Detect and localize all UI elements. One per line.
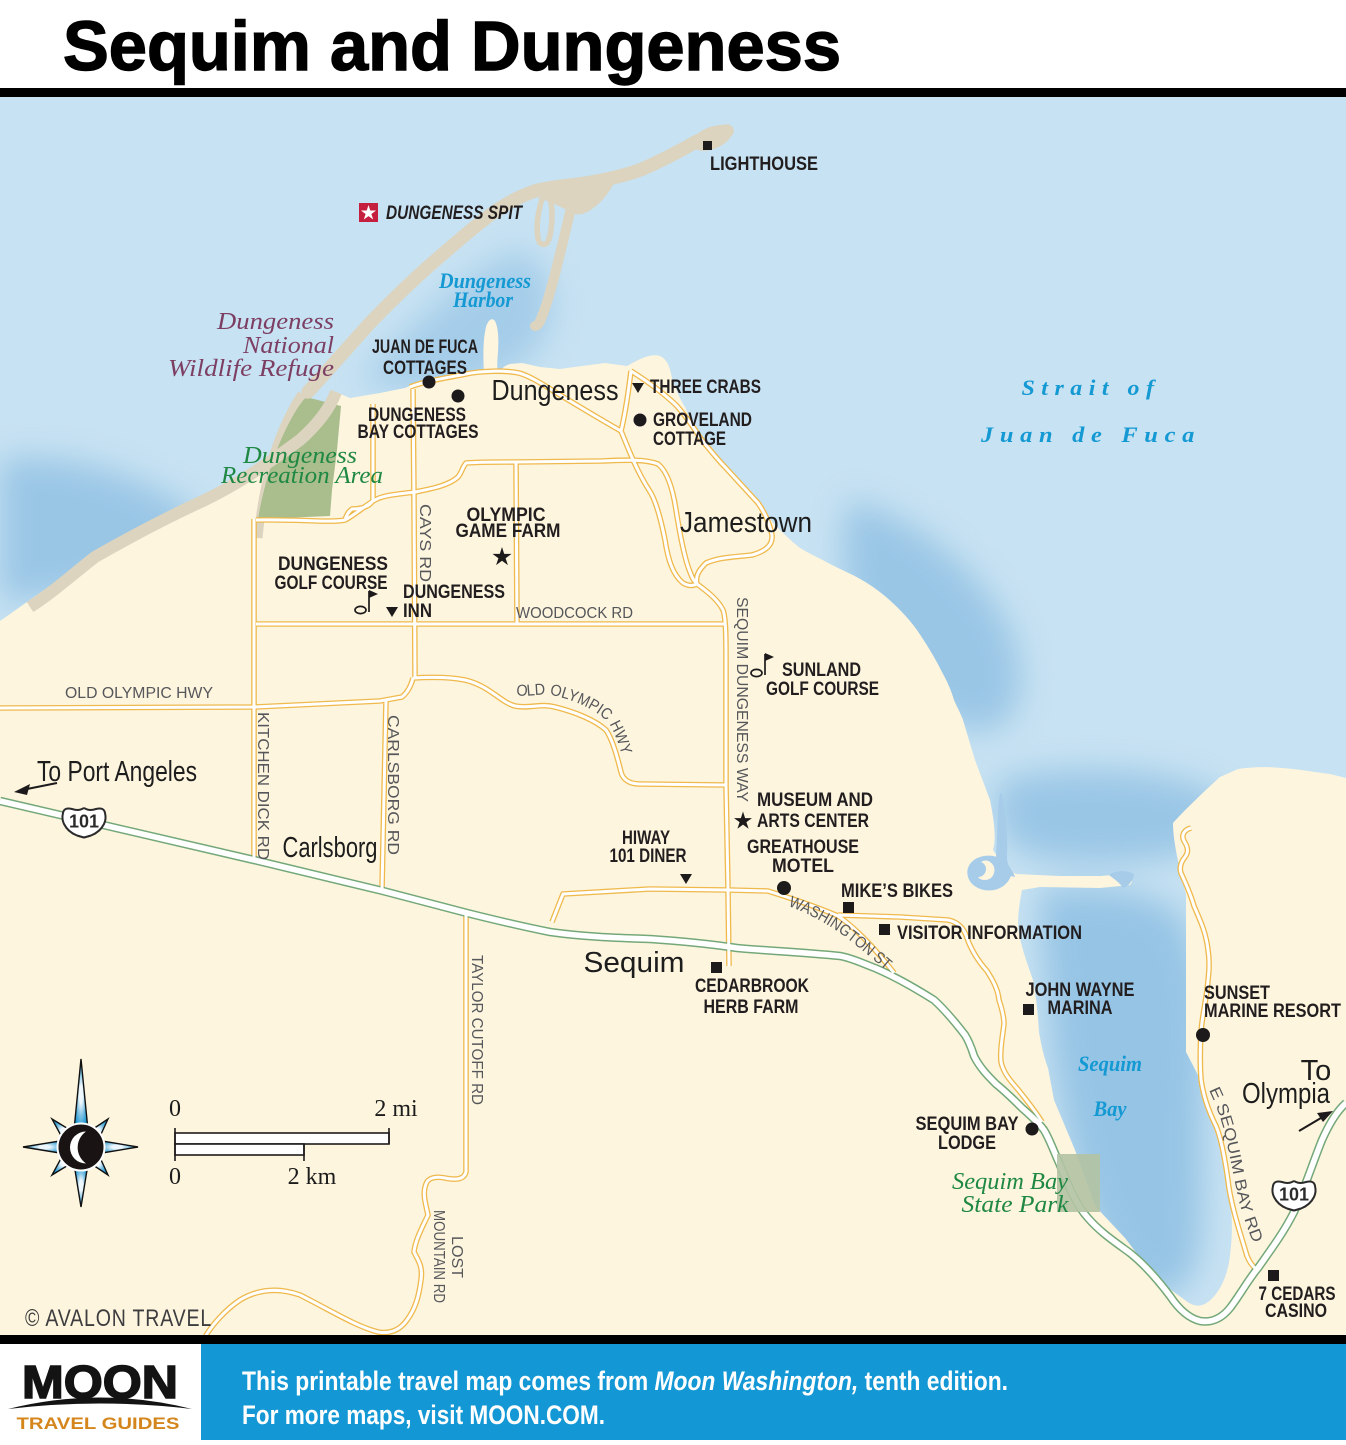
svg-text:Dungeness: Dungeness xyxy=(216,309,334,335)
svg-text:DUNGENESS: DUNGENESS xyxy=(278,554,388,575)
svg-text:MARINA: MARINA xyxy=(1048,998,1113,1019)
svg-text:Olympia: Olympia xyxy=(1242,1078,1331,1110)
svg-text:0: 0 xyxy=(169,1164,181,1190)
svg-text:Strait of: Strait of xyxy=(1022,375,1161,400)
svg-text:BAY COTTAGES: BAY COTTAGES xyxy=(358,422,479,443)
svg-text:SEQUIM BAY: SEQUIM BAY xyxy=(916,1114,1019,1135)
svg-text:Juan de Fuca: Juan de Fuca xyxy=(980,422,1201,447)
svg-text:© AVALON TRAVEL: © AVALON TRAVEL xyxy=(25,1305,212,1332)
svg-text:Bay: Bay xyxy=(1093,1096,1127,1121)
svg-text:Carlsborg: Carlsborg xyxy=(283,832,378,864)
svg-text:KITCHEN DICK RD: KITCHEN DICK RD xyxy=(254,712,271,860)
svg-text:TRAVEL GUIDES: TRAVEL GUIDES xyxy=(17,1414,180,1433)
svg-text:MARINE RESORT: MARINE RESORT xyxy=(1204,1001,1341,1022)
svg-text:101: 101 xyxy=(1279,1185,1309,1205)
svg-text:Jamestown: Jamestown xyxy=(680,507,812,539)
svg-text:2 km: 2 km xyxy=(288,1164,337,1190)
svg-text:LODGE: LODGE xyxy=(938,1133,996,1154)
svg-text:MOTEL: MOTEL xyxy=(772,856,834,877)
svg-text:JUAN DE FUCA: JUAN DE FUCA xyxy=(372,337,478,358)
svg-text:101 DINER: 101 DINER xyxy=(610,846,687,867)
svg-text:LOST: LOST xyxy=(448,1236,465,1278)
svg-text:CARLSBORG RD: CARLSBORG RD xyxy=(384,715,401,855)
svg-text:Sequim: Sequim xyxy=(584,947,685,979)
svg-text:Harbor: Harbor xyxy=(452,287,513,312)
svg-text:OLD OLYMPIC HWY: OLD OLYMPIC HWY xyxy=(65,685,213,702)
svg-text:THREE CRABS: THREE CRABS xyxy=(650,377,761,398)
svg-text:To Port Angeles: To Port Angeles xyxy=(37,756,197,788)
svg-text:DUNGENESS: DUNGENESS xyxy=(403,582,505,603)
svg-text:MIKE’S BIKES: MIKE’S BIKES xyxy=(841,881,953,902)
svg-text:GROVELAND: GROVELAND xyxy=(653,410,752,431)
svg-text:GREATHOUSE: GREATHOUSE xyxy=(747,837,859,858)
svg-text:CAYS RD: CAYS RD xyxy=(416,504,433,582)
svg-text:Recreation Area: Recreation Area xyxy=(220,463,383,489)
svg-text:COTTAGES: COTTAGES xyxy=(383,358,467,379)
svg-text:INN: INN xyxy=(403,601,432,622)
svg-text:LIGHTHOUSE: LIGHTHOUSE xyxy=(710,154,818,175)
svg-text:TAYLOR CUTOFF RD: TAYLOR CUTOFF RD xyxy=(468,955,485,1105)
svg-text:DUNGENESS SPIT: DUNGENESS SPIT xyxy=(386,203,523,224)
svg-text:VISITOR INFORMATION: VISITOR INFORMATION xyxy=(897,923,1082,944)
svg-text:ARTS CENTER: ARTS CENTER xyxy=(757,811,869,832)
svg-text:CEDARBROOK: CEDARBROOK xyxy=(695,976,809,997)
svg-text:HERB FARM: HERB FARM xyxy=(704,997,799,1018)
svg-text:GAME FARM: GAME FARM xyxy=(456,521,561,542)
svg-text:Wildlife Refuge: Wildlife Refuge xyxy=(168,356,334,382)
svg-text:SEQUIM DUNGENESS WAY: SEQUIM DUNGENESS WAY xyxy=(733,597,750,802)
svg-text:MUSEUM AND: MUSEUM AND xyxy=(757,790,873,811)
svg-text:101: 101 xyxy=(69,812,99,832)
svg-text:2 mi: 2 mi xyxy=(374,1096,418,1122)
svg-text:Sequim and Dungeness: Sequim and Dungeness xyxy=(63,7,841,85)
svg-text:SUNLAND: SUNLAND xyxy=(782,660,861,681)
svg-text:GOLF COURSE: GOLF COURSE xyxy=(766,679,879,700)
svg-text:CASINO: CASINO xyxy=(1265,1301,1327,1322)
svg-text:Dungeness: Dungeness xyxy=(492,375,619,407)
svg-text:This printable travel map come: This printable travel map comes from Moo… xyxy=(242,1366,1008,1396)
svg-text:Sequim: Sequim xyxy=(1078,1051,1142,1076)
svg-text:COTTAGE: COTTAGE xyxy=(653,429,726,450)
svg-text:State Park: State Park xyxy=(962,1192,1069,1218)
svg-text:MOUNTAIN RD: MOUNTAIN RD xyxy=(430,1210,447,1303)
svg-text:WOODCOCK RD: WOODCOCK RD xyxy=(516,605,633,622)
svg-text:For more maps, visit MOON.COM.: For more maps, visit MOON.COM. xyxy=(242,1400,605,1430)
svg-text:0: 0 xyxy=(169,1096,181,1122)
